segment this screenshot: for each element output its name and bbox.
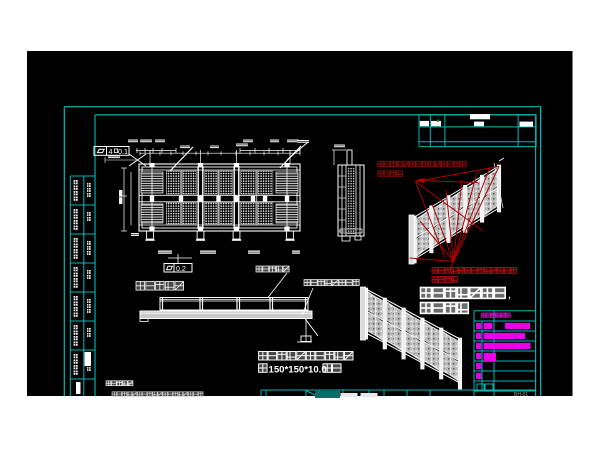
- svg-text:,: ,: [508, 289, 511, 301]
- svg-text:4: 4: [109, 147, 113, 156]
- svg-text:BH-01: BH-01: [514, 392, 528, 398]
- svg-text:0.2: 0.2: [176, 266, 186, 273]
- svg-text:150*150*10.0: 150*150*10.0: [269, 364, 327, 375]
- svg-text:0.1: 0.1: [118, 147, 128, 156]
